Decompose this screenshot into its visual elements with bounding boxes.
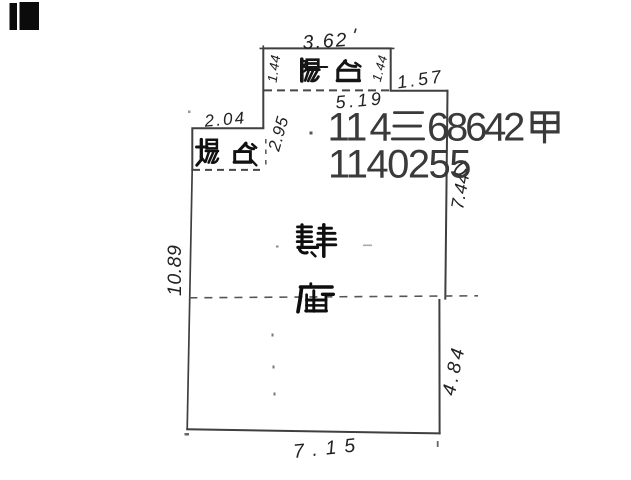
svg-text:1140255: 1140255 [328,143,470,187]
svg-text:2.04: 2.04 [203,108,247,131]
svg-text:10.89: 10.89 [164,245,186,296]
svg-text:3.62: 3.62 [302,29,349,54]
